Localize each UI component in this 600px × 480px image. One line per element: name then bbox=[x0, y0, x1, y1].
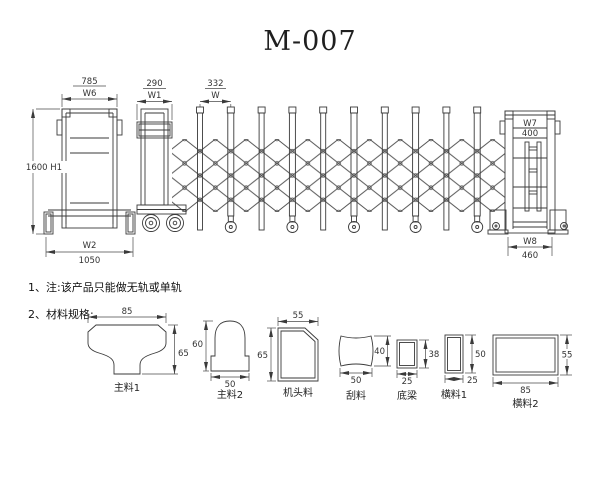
label-zhuliao1: 主料1 bbox=[114, 381, 140, 394]
dim-332: 332 bbox=[207, 79, 223, 89]
dim-p4-40: 40 bbox=[374, 347, 385, 357]
dim-p7-85: 85 bbox=[520, 386, 531, 396]
technical-drawing-page: M-007 785 W6 160 bbox=[0, 0, 600, 480]
dim-p7-55: 55 bbox=[562, 351, 573, 361]
dim-p6-50: 50 bbox=[475, 350, 486, 360]
tail-post-dimension: W8 460 bbox=[508, 237, 552, 261]
left-post-dimensions: 785 W6 1600 H1 W2 1050 bbox=[21, 77, 133, 266]
accordion-lattice bbox=[172, 139, 505, 212]
dim-w8: W8 bbox=[523, 237, 537, 247]
label-diliang: 底梁 bbox=[397, 389, 417, 402]
dim-w7: W7 bbox=[523, 119, 537, 129]
label-zhuliao2: 主料2 bbox=[217, 388, 243, 401]
bay-dimension: 332 W bbox=[200, 79, 231, 107]
dim-p6-25: 25 bbox=[467, 376, 478, 386]
note-2: 2、材料规格: bbox=[28, 307, 94, 321]
profile-zhuliao1: 85 65 主料1 bbox=[88, 307, 189, 394]
dim-785: 785 bbox=[81, 77, 97, 87]
dim-p5-38: 38 bbox=[429, 350, 440, 360]
dim-p2-50: 50 bbox=[225, 380, 236, 390]
profile-zhuliao2: 60 50 主料2 bbox=[192, 321, 249, 401]
dim-1600-h1: 1600 H1 bbox=[26, 163, 62, 173]
dim-w6: W6 bbox=[83, 89, 97, 99]
drawing-canvas: M-007 785 W6 160 bbox=[0, 0, 600, 480]
dim-p2-60: 60 bbox=[192, 340, 203, 350]
profile-gualiao: 40 50 刮料 bbox=[339, 336, 391, 402]
dim-1050: 1050 bbox=[79, 256, 101, 266]
profile-hengliao1: 50 25 横料1 bbox=[441, 335, 486, 401]
profile-diliang: 38 25 底梁 bbox=[397, 340, 439, 402]
label-gualiao: 刮料 bbox=[346, 389, 366, 402]
dim-w2: W2 bbox=[83, 241, 97, 251]
label-jitouliao: 机头料 bbox=[283, 386, 313, 399]
label-hengliao1: 横料1 bbox=[441, 388, 467, 401]
profile-hengliao2: 55 85 横料2 bbox=[493, 335, 574, 410]
dim-400: 400 bbox=[522, 129, 538, 139]
dim-p4-50: 50 bbox=[351, 376, 362, 386]
profile-jitouliao: 55 65 机头料 bbox=[257, 311, 318, 399]
dim-p5-25: 25 bbox=[402, 377, 413, 387]
dim-460: 460 bbox=[522, 251, 538, 261]
dim-w1: W1 bbox=[148, 91, 162, 101]
dim-p1-65: 65 bbox=[178, 349, 189, 359]
dim-p3-55: 55 bbox=[293, 311, 304, 321]
dim-290: 290 bbox=[146, 79, 162, 89]
dim-p1-85: 85 bbox=[122, 307, 133, 317]
head-unit-dimension: 290 W1 bbox=[137, 79, 172, 120]
label-hengliao2: 横料2 bbox=[512, 397, 538, 410]
note-1: 1、注:该产品只能做无轨或单轨 bbox=[28, 280, 182, 294]
page-title: M-007 bbox=[263, 26, 356, 57]
dim-p3-65: 65 bbox=[257, 351, 268, 361]
dim-w: W bbox=[211, 91, 220, 101]
